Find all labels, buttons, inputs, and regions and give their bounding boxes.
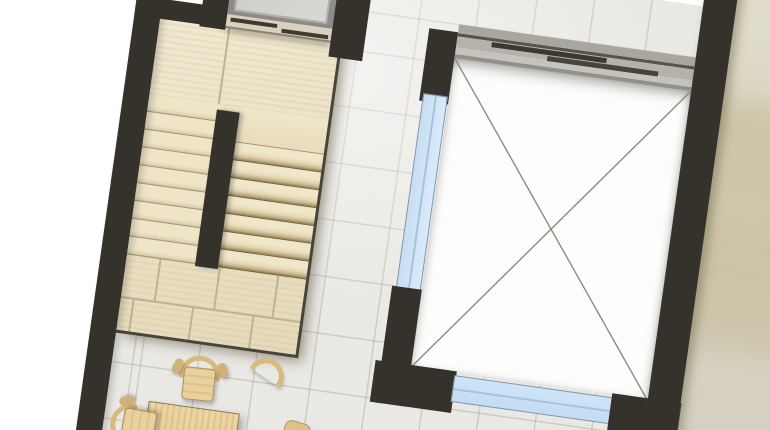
chair-seat [120,407,158,430]
void-cross-mark [411,58,691,400]
floor-plan-screenshot [0,0,770,430]
void-room-floor [411,58,691,400]
landing-joint [272,276,280,318]
landing-joint [248,314,255,351]
armchair-top [172,353,227,406]
chair-seat [181,366,216,402]
landing-joint [187,306,194,343]
landing-joint [218,27,231,104]
elevator-door-leaf [230,18,277,29]
landing-joint [154,259,162,301]
landing-joint [213,267,221,309]
landing-joint [128,298,135,335]
